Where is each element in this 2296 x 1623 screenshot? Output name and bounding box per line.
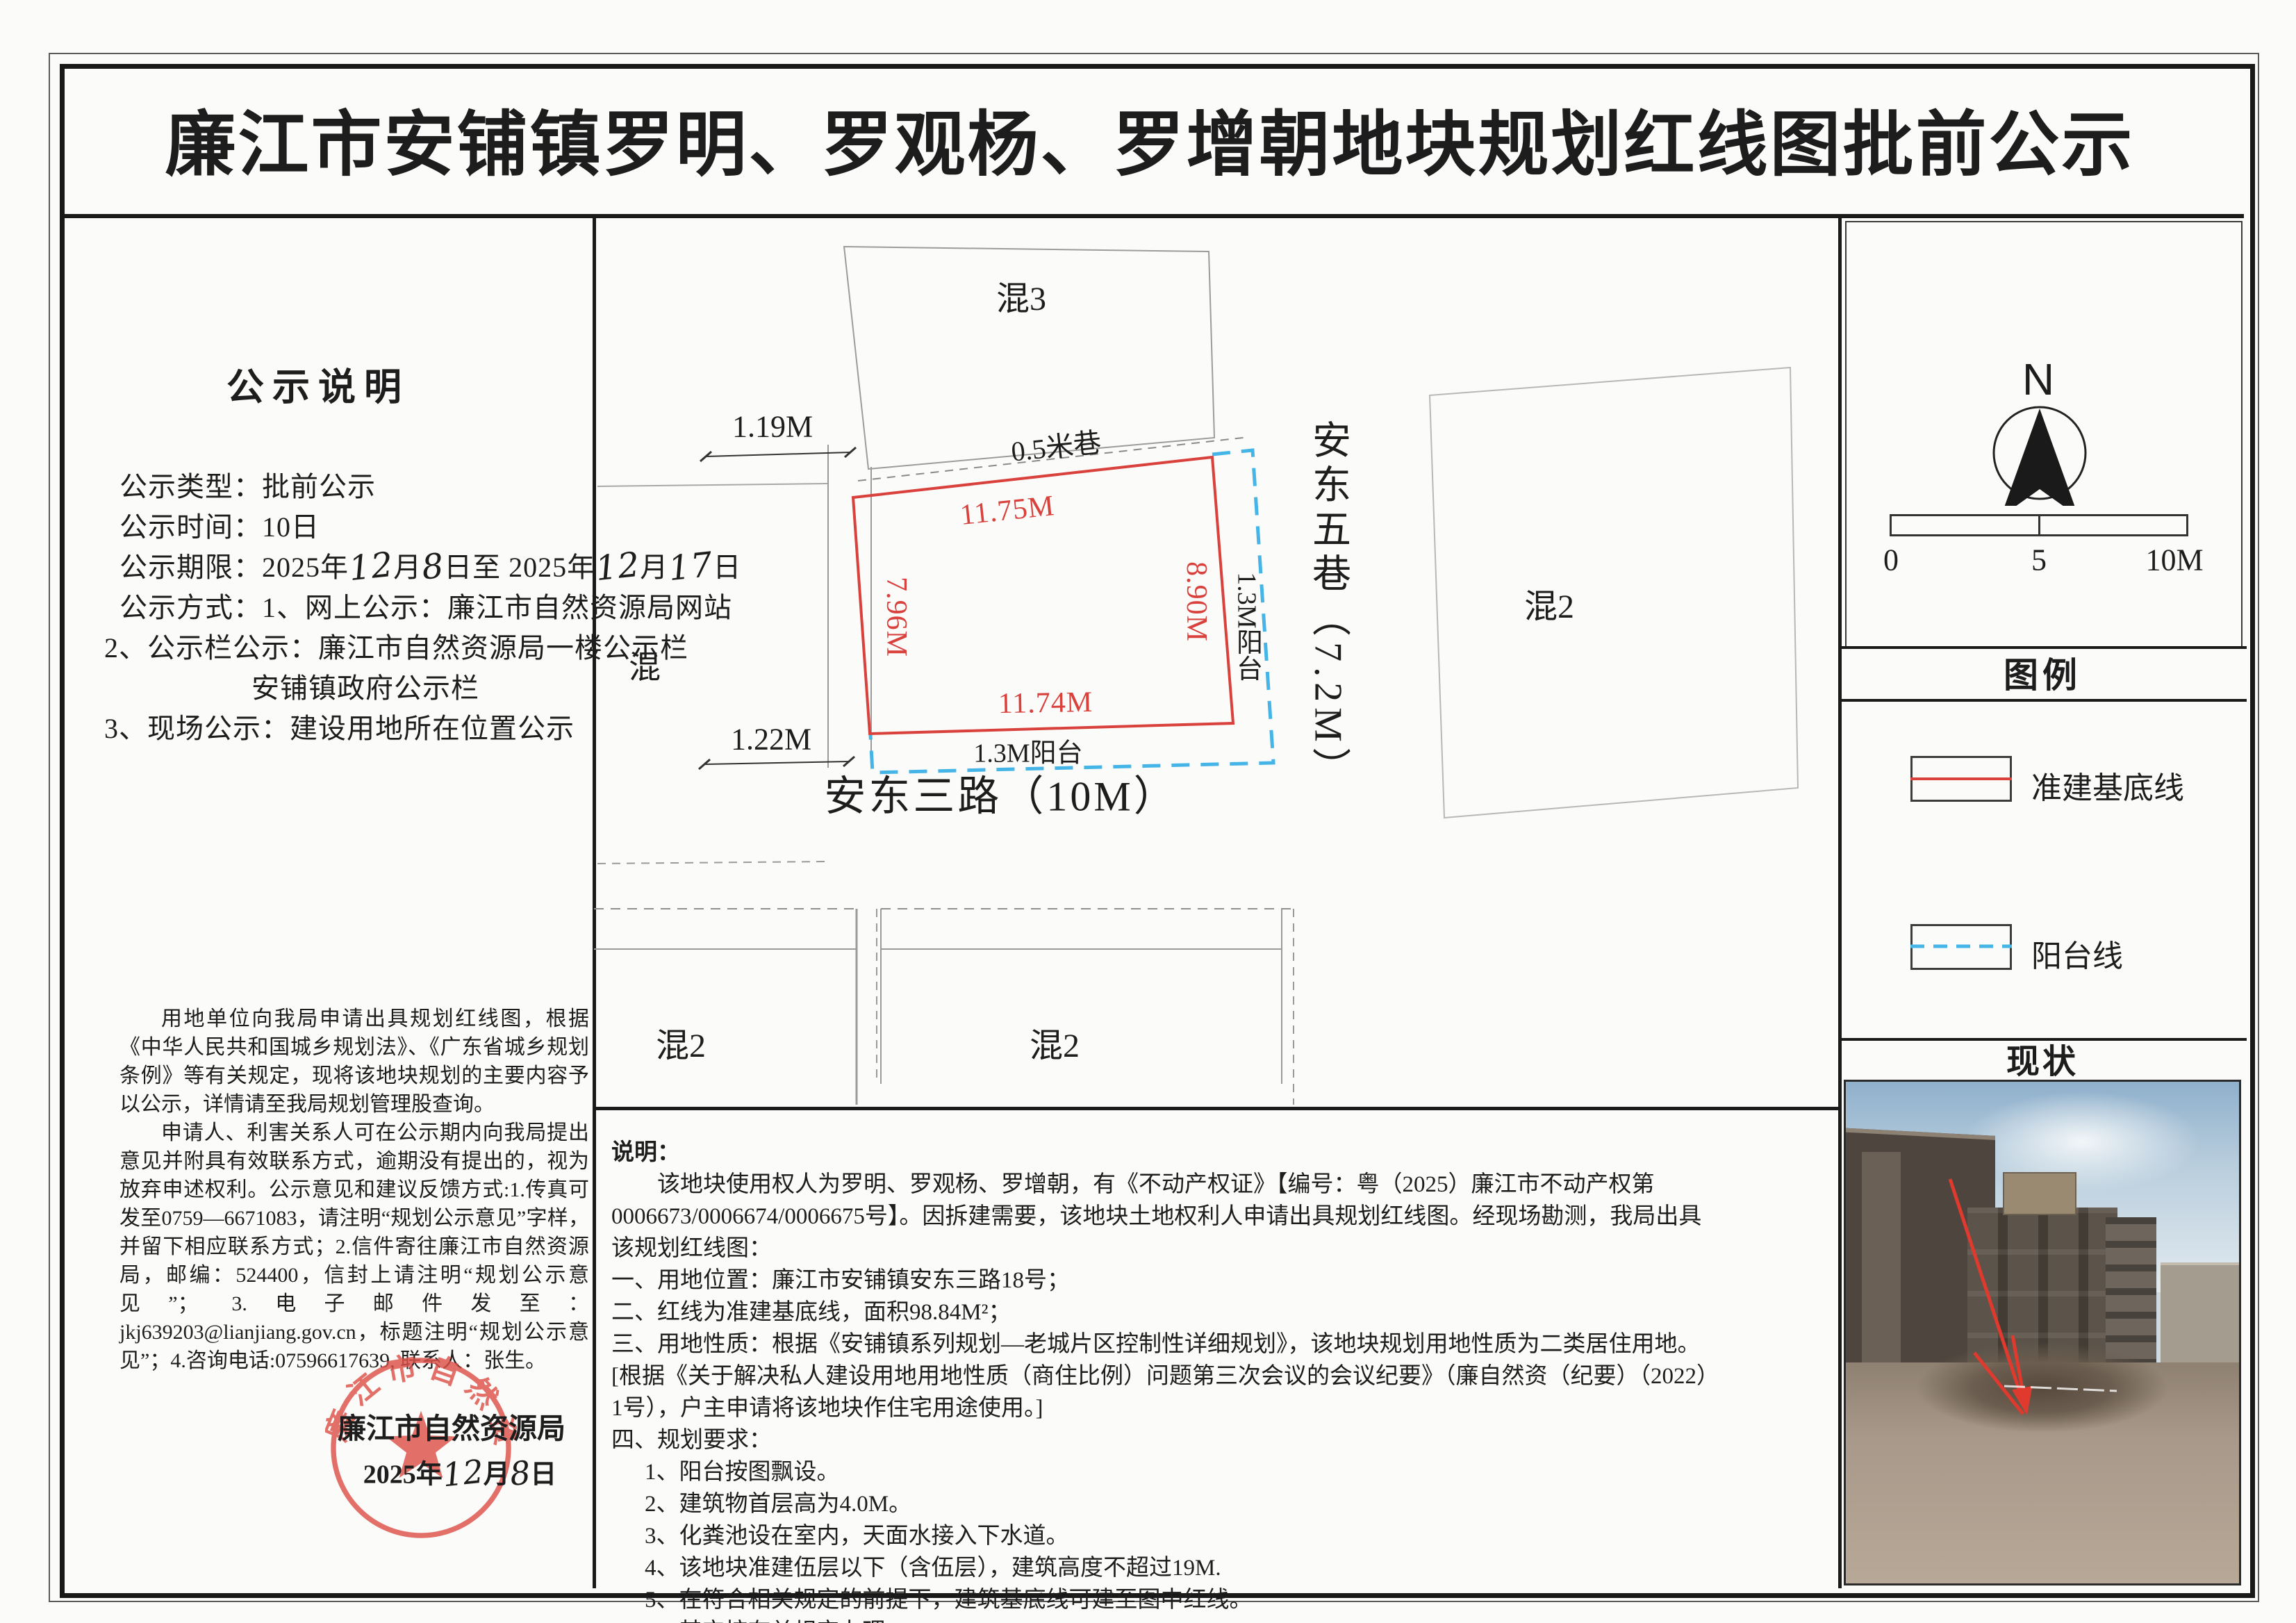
legend-balcony-sample — [1910, 944, 2012, 949]
legend-label-balcony: 阳台线 — [2031, 931, 2123, 975]
notes-intro: 该地块使用权人为罗明、罗观杨、罗增朝，有《不动产权证》【编号：粤（2025）廉江… — [611, 1169, 1723, 1264]
road-side-label: 安东五巷（7.2M） — [1300, 420, 1357, 792]
offset-bottom-label: 1.22M — [731, 722, 811, 757]
legend-title-underline — [1840, 699, 2247, 702]
parcel-west-top-line — [597, 484, 828, 486]
notes-item: 1、阳台按图飘设。 — [611, 1456, 1723, 1488]
parcel-east-outline — [1430, 368, 1798, 818]
notes-block: 说明： 该地块使用权人为罗明、罗观杨、罗增朝，有《不动产权证》【编号：粤（202… — [611, 1137, 1723, 1623]
legend-label-redline: 准建基底线 — [2031, 763, 2184, 807]
scale-bar-tick — [2038, 514, 2040, 536]
handwritten-day-1: 8 — [420, 545, 446, 587]
dim-left-label: 7.96M — [879, 577, 913, 657]
notes-item: 四、规划要求： — [611, 1424, 1723, 1456]
notes-item: 5、在符合相关规定的前提下，建筑基底线可建至图中红线。 — [611, 1584, 1723, 1616]
south-parcel-left-label: 混2 — [656, 1018, 706, 1066]
scale-label-10: 10M — [2145, 543, 2203, 578]
handwritten-sign-month: 12 — [440, 1453, 485, 1494]
signature-organization: 廉江市自然资源局 — [338, 1405, 565, 1447]
notice-body-paragraphs: 用地单位向我局申请出具规划红线图，根据《中华人民共和国城乡规划法》、《广东省城乡… — [119, 1005, 589, 1375]
notes-item: 一、用地位置：廉江市安铺镇安东三路18号； — [611, 1264, 1723, 1296]
parcel-west-label: 混 — [629, 642, 661, 688]
site-plan-drawing — [594, 215, 1838, 1107]
dim-right-label: 8.90M — [1180, 561, 1213, 642]
notice-method-line-2b: 安铺镇政府公示栏 — [251, 666, 479, 706]
south-parcel-mid-label: 混2 — [1030, 1018, 1080, 1066]
parcel-west-bottom-dashed — [597, 862, 828, 864]
status-photo — [1844, 1080, 2241, 1585]
notes-item: 二、红线为准建基底线，面积98.84M²； — [611, 1296, 1723, 1328]
scanned-planning-notice: 廉江市安铺镇罗明、罗观杨、罗增朝地块规划红线图批前公示 公示说明 公示类型：批前… — [0, 0, 2296, 1623]
balcony-side-label: 1.3M阳台 — [1228, 572, 1266, 681]
period-label: 公示期限： — [119, 552, 262, 583]
notice-method-line-3: 3、现场公示：建设用地所在位置公示 — [104, 706, 575, 746]
legend-redline-sample — [1910, 777, 2012, 780]
parcel-east-label: 混2 — [1524, 579, 1574, 627]
notice-type-line: 公示类型：批前公示 — [119, 464, 376, 504]
legend-title: 图例 — [2004, 648, 2081, 698]
notes-heading: 说明： — [611, 1137, 1723, 1169]
signature-date: 2025年12月8日 — [363, 1453, 557, 1491]
notice-heading: 公示说明 — [226, 356, 410, 411]
notes-item: 2、建筑物首层高为4.0M。 — [611, 1488, 1723, 1520]
notice-time-line: 公示时间：10日 — [119, 504, 320, 545]
notice-paragraph-1: 用地单位向我局申请出具规划红线图，根据《中华人民共和国城乡规划法》、《广东省城乡… — [119, 1005, 589, 1119]
page-title: 廉江市安铺镇罗明、罗观杨、罗增朝地块规划红线图批前公示 — [165, 88, 2135, 190]
north-label: N — [2022, 354, 2054, 405]
scale-label-0: 0 — [1883, 543, 1899, 578]
offset-top-label: 1.19M — [732, 409, 813, 445]
notes-item: 三、用地性质：根据《安铺镇系列规划—老城片区控制性详细规划》，该地块规划用地性质… — [611, 1328, 1723, 1424]
handwritten-sign-day: 8 — [508, 1453, 532, 1493]
scale-label-5: 5 — [2031, 543, 2047, 578]
divider-notes — [594, 1107, 1838, 1110]
handwritten-month-1: 12 — [347, 545, 395, 588]
notes-item: 6、其它按有关规定办理。 — [611, 1616, 1723, 1623]
divider-right-column — [1838, 215, 1842, 1588]
status-title: 现状 — [2006, 1034, 2079, 1082]
road-bottom-label: 安东三路（10M） — [824, 763, 1178, 823]
official-seal: 廉江市自然资源局 — [325, 1352, 517, 1544]
notice-paragraph-2: 申请人、利害关系人可在公示期内向我局提出意见并附具有效联系方式，逾期没有提出的，… — [119, 1119, 589, 1375]
north-arrow-icon — [1987, 400, 2092, 506]
dim-bottom-label: 11.74M — [998, 686, 1093, 720]
notes-item: 3、化粪池设在室内，天面水接入下水道。 — [611, 1520, 1723, 1552]
parcel-north-label: 混3 — [996, 271, 1046, 320]
notes-item: 4、该地块准建伍层以下（含伍层），建筑高度不超过19M. — [611, 1552, 1723, 1584]
photo-annotations — [1846, 1082, 2239, 1583]
